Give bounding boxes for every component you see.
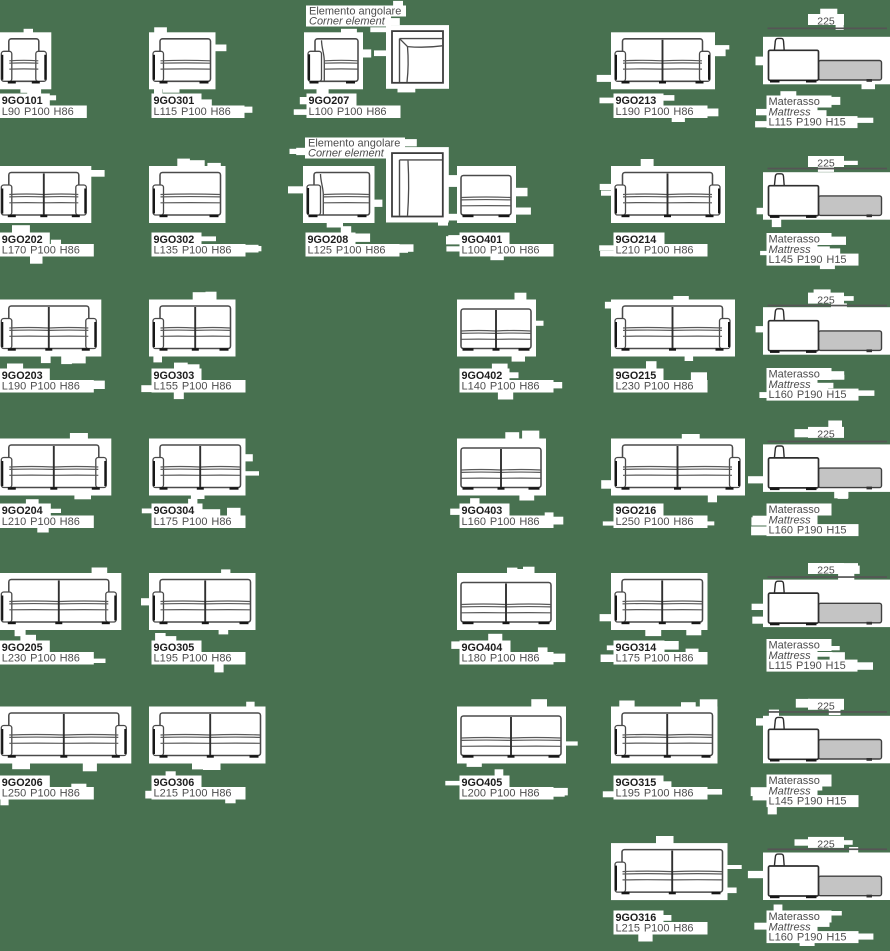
svg-text:L230 P100 H86: L230 P100 H86 [616,381,694,393]
svg-text:L210 P100 H86: L210 P100 H86 [2,516,80,528]
svg-text:L115 P190 H15: L115 P190 H15 [769,117,846,129]
svg-text:Corner element: Corner element [308,148,385,160]
svg-text:Corner element: Corner element [309,16,386,28]
svg-text:225: 225 [817,429,835,441]
svg-text:L135 P100 H86: L135 P100 H86 [154,245,232,257]
svg-text:225: 225 [817,294,835,306]
svg-text:L195 P100 H86: L195 P100 H86 [616,788,694,800]
svg-text:L160 P190 H15: L160 P190 H15 [769,525,847,537]
svg-text:L175 P100 H86: L175 P100 H86 [616,653,694,665]
svg-text:L145 P190 H15: L145 P190 H15 [769,254,847,266]
svg-text:L230 P100 H86: L230 P100 H86 [2,653,80,665]
svg-text:225: 225 [817,701,835,713]
svg-text:225: 225 [817,565,835,577]
svg-text:L125 P100 H86: L125 P100 H86 [308,245,386,257]
svg-text:L190 P100 H86: L190 P100 H86 [616,106,694,118]
svg-text:L115 P100 H86: L115 P100 H86 [154,106,231,118]
svg-text:L115 P190 H15: L115 P190 H15 [769,660,846,672]
svg-text:L100 P100 H86: L100 P100 H86 [309,106,387,118]
svg-text:L215 P100 H86: L215 P100 H86 [616,923,694,935]
svg-text:L250 P100 H86: L250 P100 H86 [616,516,694,528]
svg-text:L145 P190 H15: L145 P190 H15 [769,796,847,808]
svg-text:225: 225 [817,16,835,28]
svg-text:L90 P100 H86: L90 P100 H86 [2,106,74,118]
svg-text:L250 P100 H86: L250 P100 H86 [2,788,80,800]
svg-text:L160 P190 H15: L160 P190 H15 [769,932,847,944]
svg-text:L190 P100 H86: L190 P100 H86 [2,381,80,393]
svg-text:L155 P100 H86: L155 P100 H86 [154,381,232,393]
svg-text:L180 P100 H86: L180 P100 H86 [462,653,540,665]
svg-text:L175 P100 H86: L175 P100 H86 [154,516,232,528]
svg-text:L100 P100 H86: L100 P100 H86 [462,245,540,257]
svg-text:L170 P100 H86: L170 P100 H86 [2,245,80,257]
svg-text:L160 P100 H86: L160 P100 H86 [462,516,540,528]
svg-text:L195 P100 H86: L195 P100 H86 [154,653,232,665]
svg-text:L215 P100 H86: L215 P100 H86 [154,788,232,800]
svg-text:L200 P100 H86: L200 P100 H86 [462,788,540,800]
svg-text:L210 P100 H86: L210 P100 H86 [616,245,694,257]
svg-text:L160 P190 H15: L160 P190 H15 [769,389,847,401]
svg-text:L140 P100 H86: L140 P100 H86 [462,381,540,393]
